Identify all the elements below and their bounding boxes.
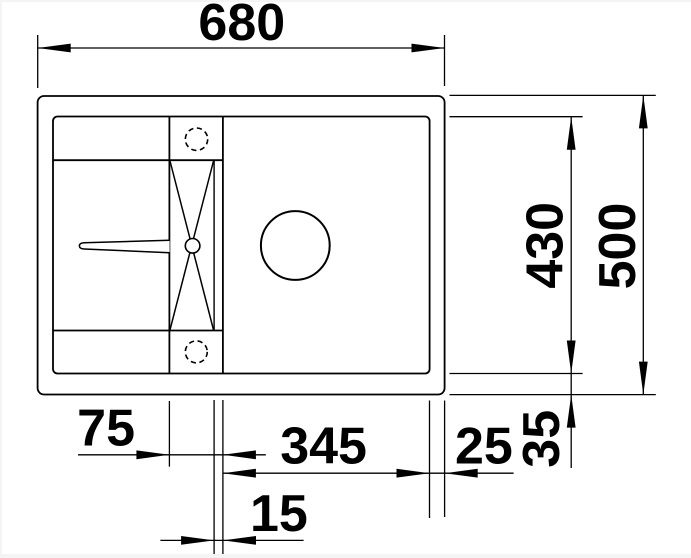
- svg-text:345: 345: [280, 418, 367, 476]
- svg-text:75: 75: [77, 400, 135, 458]
- svg-text:430: 430: [517, 202, 575, 289]
- svg-text:15: 15: [250, 485, 308, 543]
- svg-text:35: 35: [513, 410, 571, 468]
- svg-text:500: 500: [589, 203, 647, 290]
- svg-text:25: 25: [455, 418, 513, 476]
- svg-text:680: 680: [198, 0, 285, 52]
